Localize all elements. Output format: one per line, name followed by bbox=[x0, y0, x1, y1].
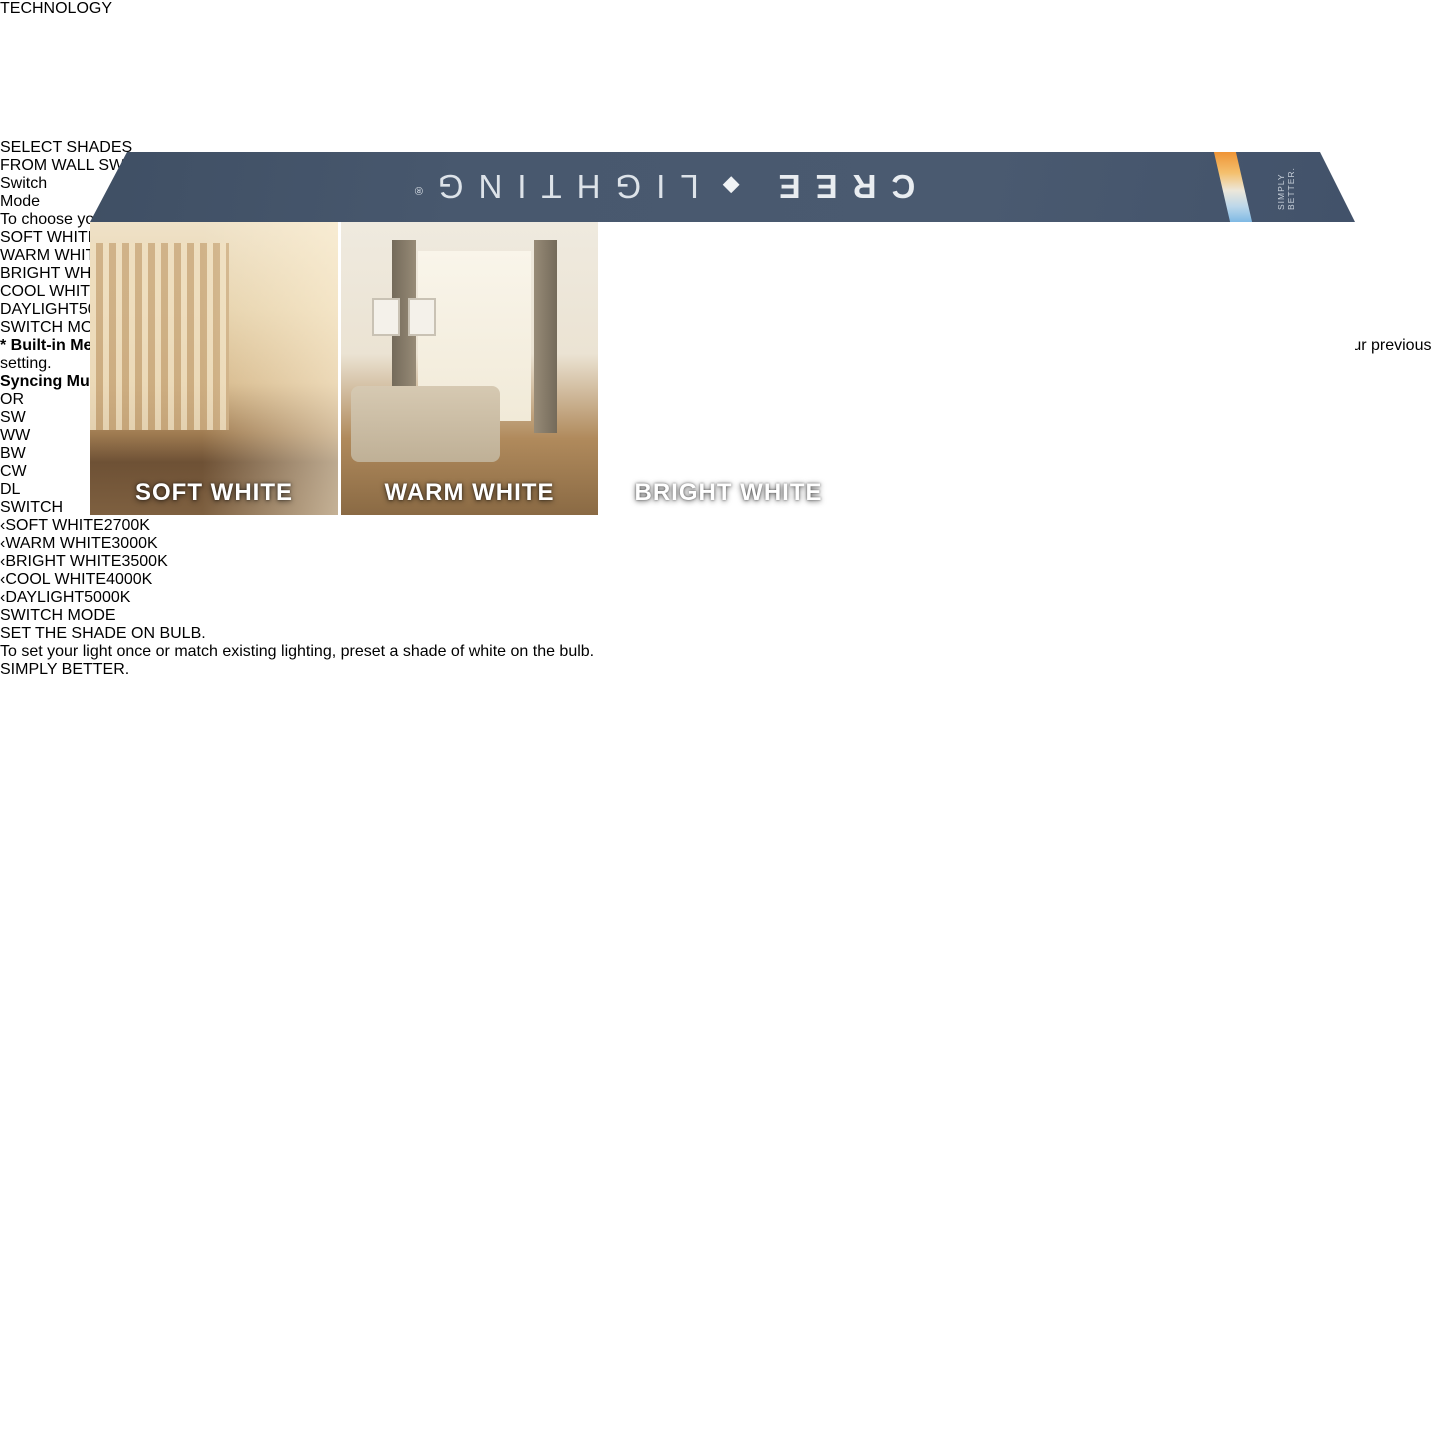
bar-kelvin: 5000K bbox=[84, 589, 130, 606]
shade-name: DAYLIGHT bbox=[0, 301, 79, 318]
panel-label: SOFT WHITE bbox=[90, 479, 338, 507]
wall-art-graphic bbox=[372, 298, 400, 336]
legend-abbr: WW bbox=[0, 427, 30, 444]
bar-bright-white: ‹BRIGHT WHITE3500K bbox=[0, 553, 1445, 571]
warm-glow-graphic bbox=[202, 222, 338, 515]
technology-badge: TECHNOLOGY bbox=[0, 0, 1445, 18]
gradient-accent-stripe bbox=[1214, 152, 1252, 222]
bar-kelvin: 4000K bbox=[106, 571, 152, 588]
photo-bright-white: BRIGHT WHITE bbox=[601, 222, 856, 515]
brand-wordmark: CREE bbox=[764, 167, 916, 205]
shade-name: SOFT WHITE bbox=[0, 229, 98, 246]
photo-soft-white: SOFT WHITE bbox=[90, 222, 338, 515]
panel-label: WARM WHITE bbox=[341, 479, 598, 507]
legend-abbr: SWITCH bbox=[0, 499, 63, 516]
bar-kelvin: 2700K bbox=[104, 517, 150, 534]
bar-cool-white: ‹COOL WHITE4000K bbox=[0, 571, 1445, 589]
set-shade-heading: SET THE SHADE ON BULB. bbox=[0, 625, 1445, 643]
bar-kelvin: 3000K bbox=[111, 535, 157, 552]
bar-soft-white: ‹SOFT WHITE2700K bbox=[0, 517, 1445, 535]
cree-lighting-logo: CREE ◆ LIGHTING® bbox=[275, 162, 1055, 210]
tagline-footer: SIMPLY BETTER. bbox=[0, 661, 1445, 679]
panel-label: BRIGHT WHITE bbox=[601, 479, 856, 507]
bar-name: BRIGHT WHITE bbox=[5, 553, 121, 570]
package-back-panel: CREE ◆ LIGHTING® SIMPLY BETTER. SOFT WHI… bbox=[0, 0, 1445, 1445]
bar-name: WARM WHITE bbox=[5, 535, 111, 552]
sofa-graphic bbox=[351, 386, 500, 462]
wraparound-arrow-icon bbox=[0, 18, 58, 134]
legend-abbr: SW bbox=[0, 409, 26, 426]
flap-edge-tagline: SIMPLY BETTER. bbox=[1276, 166, 1296, 210]
set-shade-description: To set your light once or match existing… bbox=[0, 643, 1445, 661]
bar-name: COOL WHITE bbox=[5, 571, 106, 588]
bar-warm-white: ‹WARM WHITE3000K bbox=[0, 535, 1445, 553]
box-top-flap: CREE ◆ LIGHTING® SIMPLY BETTER. bbox=[90, 152, 1355, 222]
lighting-wordmark: LIGHTING® bbox=[415, 167, 699, 205]
legend-abbr: BW bbox=[0, 445, 26, 462]
legend-abbr: DL bbox=[0, 481, 20, 498]
registered-mark: ® bbox=[415, 184, 423, 196]
bar-name: SOFT WHITE bbox=[5, 517, 103, 534]
switch-mode-position-label: SWITCH MODE bbox=[0, 607, 1445, 625]
bar-daylight: ‹DAYLIGHT5000K bbox=[0, 589, 1445, 607]
curtain-graphic bbox=[534, 240, 557, 433]
shade-comparison-photos: SOFT WHITE WARM WHITE BRIGHT WHITE bbox=[90, 222, 1355, 515]
bar-kelvin: 3500K bbox=[121, 553, 167, 570]
shade-name: COOL WHITE bbox=[0, 283, 101, 300]
shade-bars: ‹SOFT WHITE2700K ‹WARM WHITE3000K ‹BRIGH… bbox=[0, 517, 1445, 607]
bar-name: DAYLIGHT bbox=[5, 589, 84, 606]
cree-diamond-icon: ◆ bbox=[723, 173, 740, 199]
photo-warm-white: WARM WHITE bbox=[341, 222, 598, 515]
wall-art-graphic bbox=[408, 298, 436, 336]
legend-abbr: CW bbox=[0, 463, 27, 480]
